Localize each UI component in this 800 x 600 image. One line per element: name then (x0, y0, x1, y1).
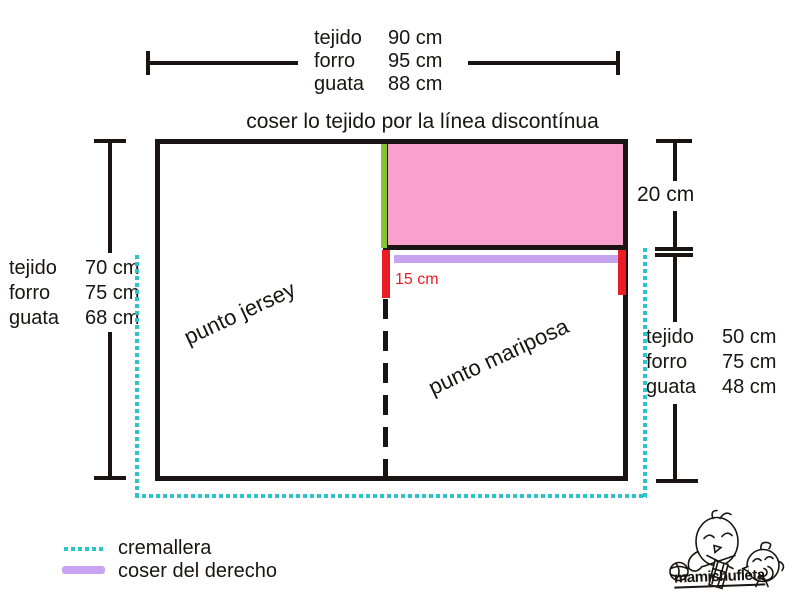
zipper-line-bottom (135, 494, 647, 498)
measurement-value: 70 cm (85, 256, 139, 281)
top-dim-right-tick (616, 51, 620, 75)
measurement-row: forro 95 cm (314, 50, 442, 73)
measurement-label: tejido (314, 27, 388, 50)
measurement-value: 88 cm (388, 73, 442, 96)
right-dim-segment-4 (673, 404, 677, 481)
measurement-label: guata (9, 306, 85, 331)
cyan-dotted-line-icon (64, 547, 104, 551)
measurement-label: forro (646, 350, 722, 375)
left-measurements: tejido 70 cm forro 75 cm guata 68 cm (9, 256, 139, 331)
legend-right-side-seam-label: coser del derecho (118, 560, 277, 583)
measurement-row: tejido 70 cm (9, 256, 139, 281)
measurement-row: tejido 90 cm (314, 27, 442, 50)
dashed-split-line (383, 299, 388, 480)
measurement-label: tejido (646, 325, 722, 350)
right-dim-middle-tick-upper (655, 247, 693, 251)
measurement-value: 48 cm (722, 375, 776, 400)
left-dim-line-upper-segment (108, 141, 112, 253)
right-dim-segment-1 (673, 141, 677, 181)
left-dim-line-lower-segment (108, 332, 112, 478)
pink-height-label: 20 cm (637, 183, 694, 207)
top-dim-line-left-segment (148, 61, 298, 65)
measurement-row: forro 75 cm (9, 281, 139, 306)
zipper-line-left (135, 255, 139, 498)
measurement-label: tejido (9, 256, 85, 281)
measurement-row: guata 48 cm (646, 375, 776, 400)
purple-seam-line (394, 255, 620, 263)
measurement-label: forro (9, 281, 85, 306)
zipper-line-right (643, 248, 647, 498)
pink-panel-rect (383, 139, 628, 250)
measurement-row: forro 75 cm (646, 350, 776, 375)
top-measurements: tejido 90 cm forro 95 cm guata 88 cm (314, 27, 442, 96)
right-dim-segment-2 (673, 211, 677, 247)
measurement-value: 95 cm (388, 50, 442, 73)
brand-name: mamichufleta (674, 566, 765, 588)
right-measurements: tejido 50 cm forro 75 cm guata 48 cm (646, 325, 776, 400)
legend-zipper-label: cremallera (118, 537, 211, 560)
instruction-text: coser lo tejido por la línea discontínua (200, 110, 645, 134)
measurement-value: 50 cm (722, 325, 776, 350)
measurement-value: 68 cm (85, 306, 139, 331)
right-dim-segment-3 (673, 257, 677, 322)
measurement-row: guata 88 cm (314, 73, 442, 96)
green-seam-line (381, 144, 387, 248)
purple-solid-line-icon (62, 566, 105, 574)
measurement-label: guata (646, 375, 722, 400)
measurement-value: 75 cm (85, 281, 139, 306)
measurement-value: 90 cm (388, 27, 442, 50)
measurement-label: forro (314, 50, 388, 73)
measurement-row: tejido 50 cm (646, 325, 776, 350)
top-dim-line-right-segment (468, 61, 618, 65)
sewing-pattern-diagram: tejido 90 cm forro 95 cm guata 88 cm cos… (0, 0, 800, 600)
red-seam-mark-left (382, 250, 390, 298)
seam-length-label: 15 cm (395, 271, 439, 289)
measurement-value: 75 cm (722, 350, 776, 375)
measurement-row: guata 68 cm (9, 306, 139, 331)
left-dim-bottom-tick (94, 476, 126, 480)
measurement-label: guata (314, 73, 388, 96)
red-seam-mark-right (618, 250, 626, 295)
right-dim-bottom-tick (656, 479, 698, 483)
